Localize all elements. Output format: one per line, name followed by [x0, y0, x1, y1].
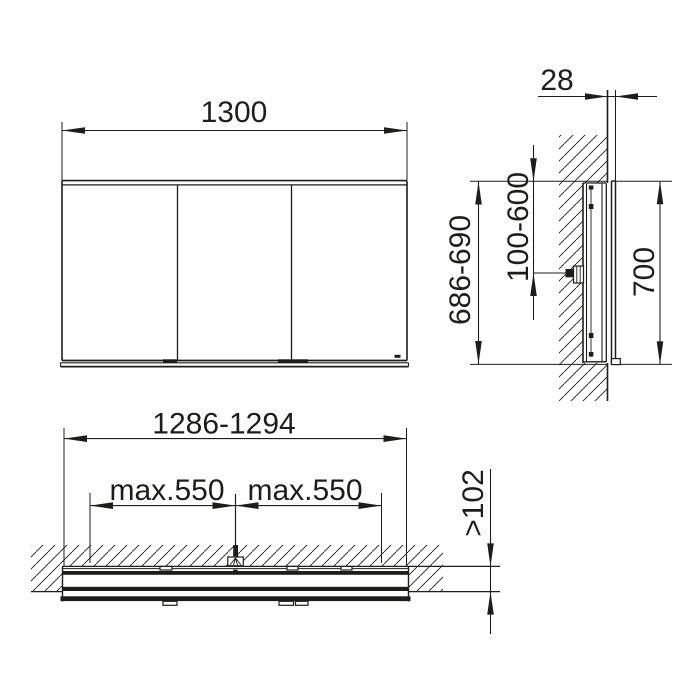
hinge-tab [296, 601, 309, 605]
technical-drawing-page: 1300 [0, 0, 700, 700]
dim-niche-width-label: 1286-1294 [152, 408, 295, 441]
hinge-tab [278, 359, 308, 363]
dim-niche-depth-label: >102 [457, 469, 490, 537]
dim-cabinet-width-label: 1300 [201, 96, 268, 129]
hinge-tab [279, 601, 294, 605]
mirror-cabinet-installation-drawing: 1300 [0, 0, 700, 700]
door-bottom-lip [612, 359, 621, 365]
screw-head [566, 269, 574, 277]
wall-hatch-left [31, 545, 62, 592]
detail-mark [395, 355, 401, 358]
mounting-block [574, 266, 584, 283]
rail-clip [589, 333, 594, 338]
dim-supply-right-label: max.550 [247, 474, 362, 507]
wall-bracket [287, 566, 298, 570]
dim-supply-left-label: max.550 [109, 474, 224, 507]
dim-protrusion-label: 28 [540, 64, 573, 97]
hinge-tab [163, 359, 177, 363]
dim-cabinet-height-label: 700 [628, 247, 661, 297]
dim-mounting-range-label: 100-600 [502, 172, 535, 282]
cable-entry-mark [233, 570, 237, 573]
rail-clip [589, 204, 594, 209]
wall-hatch-right [409, 545, 443, 592]
cable-plug [233, 545, 238, 557]
rail-clip [589, 186, 594, 190]
rail-clip [589, 352, 594, 357]
hinge-tab [163, 601, 177, 605]
mirror-door-band [61, 596, 411, 601]
body-front-band [63, 587, 409, 591]
wall-bracket [160, 566, 172, 570]
dim-niche-height-label: 686-690 [444, 215, 477, 325]
wall-bracket [341, 566, 352, 570]
